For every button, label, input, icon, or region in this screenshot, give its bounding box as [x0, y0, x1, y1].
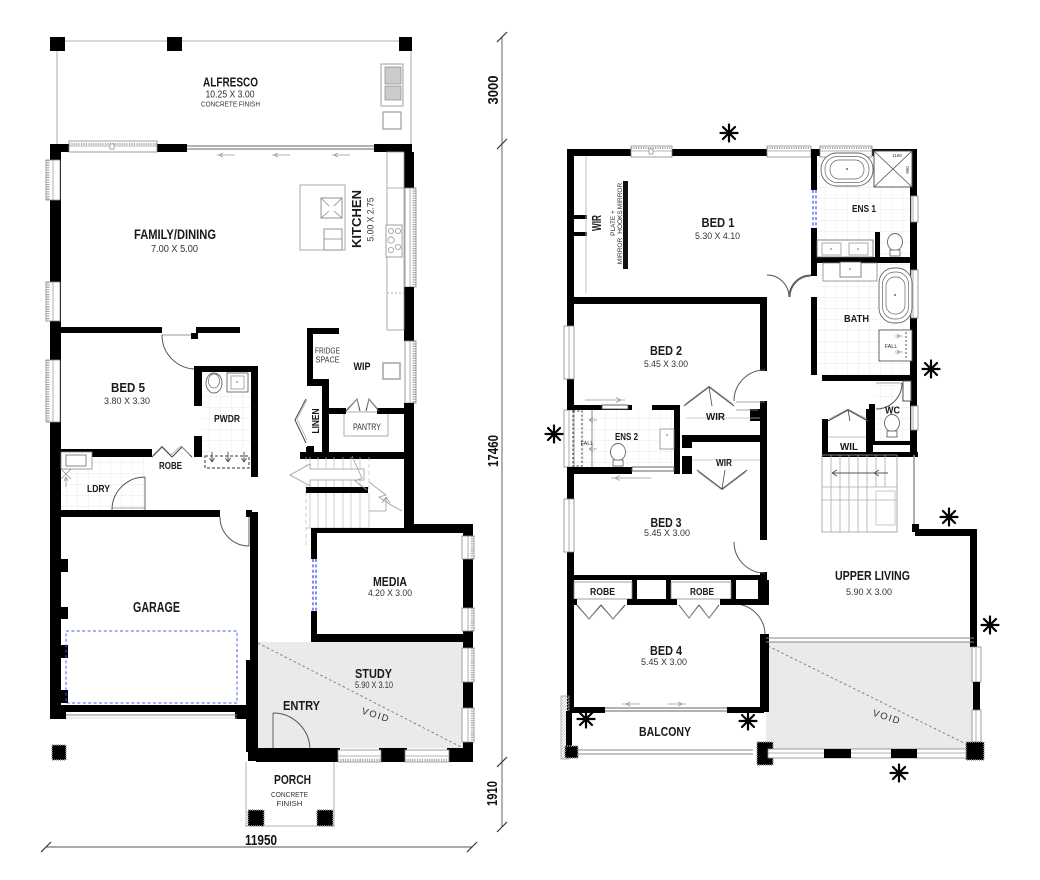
- svg-text:MIRROR: MIRROR: [617, 238, 624, 265]
- svg-text:PANTRY: PANTRY: [353, 422, 381, 433]
- svg-text:CONCRETE FINISH: CONCRETE FINISH: [201, 100, 260, 109]
- svg-text:FAMILY/DINING: FAMILY/DINING: [134, 227, 216, 242]
- svg-text:UPPER LIVING: UPPER LIVING: [835, 568, 910, 583]
- svg-text:SPACE: SPACE: [316, 356, 340, 365]
- svg-text:3000: 3000: [485, 76, 502, 105]
- svg-text:LINEN: LINEN: [310, 409, 322, 434]
- svg-text:ENS 1: ENS 1: [852, 203, 876, 215]
- svg-text:900: 900: [905, 166, 910, 174]
- svg-text:5.90 X 3.00: 5.90 X 3.00: [846, 587, 892, 598]
- svg-text:MEDIA: MEDIA: [373, 574, 407, 589]
- svg-text:CONCRETE: CONCRETE: [271, 790, 308, 799]
- svg-text:WIR: WIR: [589, 215, 604, 231]
- svg-text:WC: WC: [885, 405, 900, 417]
- svg-text:5.45 X 3.00: 5.45 X 3.00: [644, 528, 690, 539]
- svg-text:BED 2: BED 2: [650, 343, 682, 358]
- svg-text:GARAGE: GARAGE: [133, 600, 180, 616]
- svg-text:KITCHEN: KITCHEN: [349, 190, 364, 248]
- svg-text:1910: 1910: [484, 781, 501, 806]
- svg-text:STUDY: STUDY: [355, 666, 392, 681]
- svg-text:BED 4: BED 4: [650, 643, 683, 658]
- svg-text:ALFRESCO: ALFRESCO: [203, 76, 258, 90]
- svg-text:5.30 X 4.10: 5.30 X 4.10: [695, 231, 740, 242]
- svg-text:4.20 X 3.00: 4.20 X 3.00: [368, 588, 412, 599]
- svg-text:WIR: WIR: [716, 457, 732, 469]
- svg-text:ROBE: ROBE: [690, 587, 714, 598]
- svg-text:5.90 X 3.10: 5.90 X 3.10: [355, 680, 393, 691]
- svg-text:BATH: BATH: [844, 313, 869, 325]
- svg-text:HOOKS: HOOKS: [617, 210, 624, 234]
- svg-text:BED 1: BED 1: [702, 215, 735, 230]
- svg-text:BALCONY: BALCONY: [639, 724, 691, 739]
- svg-text:PWDR: PWDR: [214, 413, 240, 425]
- svg-text:LDRY: LDRY: [87, 483, 110, 495]
- svg-text:WIR: WIR: [706, 411, 725, 423]
- svg-text:ROBE: ROBE: [159, 460, 182, 472]
- svg-text:MIRROR: MIRROR: [617, 183, 624, 210]
- svg-text:FRIDGE: FRIDGE: [315, 347, 340, 356]
- svg-text:17460: 17460: [485, 435, 502, 467]
- svg-text:WIL: WIL: [840, 441, 859, 453]
- svg-text:FINISH: FINISH: [277, 799, 303, 808]
- svg-text:FALL: FALL: [581, 441, 594, 447]
- svg-text:7.00 X 5.00: 7.00 X 5.00: [151, 244, 198, 255]
- svg-text:PLATE +: PLATE +: [610, 210, 617, 236]
- svg-text:ENTRY: ENTRY: [283, 698, 320, 713]
- svg-text:1160: 1160: [892, 153, 902, 158]
- svg-text:WIP: WIP: [354, 361, 371, 373]
- svg-text:FALL: FALL: [885, 344, 898, 350]
- svg-text:PORCH: PORCH: [274, 772, 311, 787]
- svg-text:5.00 X 2.75: 5.00 X 2.75: [366, 198, 377, 242]
- svg-text:11950: 11950: [245, 832, 277, 849]
- svg-text:ENS 2: ENS 2: [615, 432, 638, 443]
- svg-text:BED 5: BED 5: [111, 380, 145, 395]
- svg-text:3.80 X 3.30: 3.80 X 3.30: [104, 396, 150, 407]
- svg-text:5.45 X 3.00: 5.45 X 3.00: [644, 359, 688, 370]
- svg-text:5.45 X 3.00: 5.45 X 3.00: [641, 657, 687, 668]
- svg-text:ROBE: ROBE: [590, 587, 615, 598]
